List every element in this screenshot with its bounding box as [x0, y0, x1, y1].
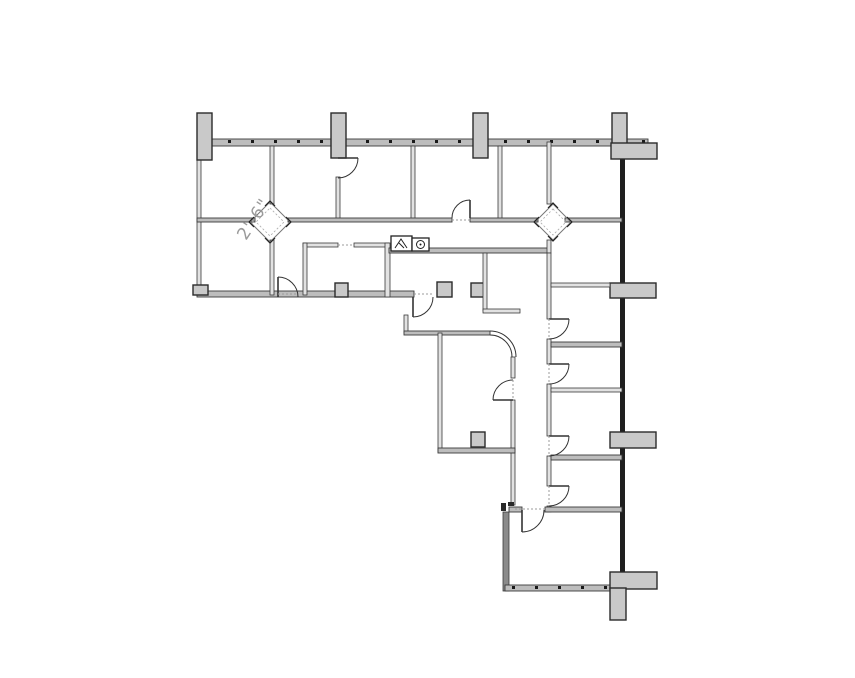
door-arc — [338, 158, 358, 178]
room-divider — [551, 388, 622, 392]
door-arc — [549, 436, 569, 456]
column-right-2 — [610, 432, 656, 448]
doors — [278, 158, 569, 532]
interior-walls-middle — [404, 315, 516, 505]
floor-plan-canvas: 2'-6" — [0, 0, 855, 678]
door-jamb-detail — [508, 502, 514, 506]
wall-segment — [411, 146, 415, 220]
column-top-1 — [197, 113, 212, 160]
wall-segment — [547, 240, 551, 253]
wall-segment — [336, 177, 340, 220]
room-west-wall — [438, 333, 442, 452]
wall-segment — [404, 331, 490, 335]
column-bottom-left-corner — [193, 285, 208, 295]
wall-segment — [303, 243, 338, 247]
door-arc — [549, 364, 569, 384]
wall-segment — [303, 243, 307, 295]
exterior-wall-bottom-room-left — [503, 512, 509, 591]
door-arc — [493, 380, 513, 400]
corridor-wall-segment — [565, 218, 622, 222]
column-top-right-horizontal — [611, 143, 657, 159]
door-arc — [549, 486, 569, 506]
door-arc — [549, 319, 569, 339]
wall-segment — [547, 253, 551, 319]
window-wall-top — [197, 139, 648, 146]
corridor-wall-segment — [470, 218, 538, 222]
wall-segment — [270, 240, 274, 295]
column-top-2 — [331, 113, 346, 158]
wall-segment — [547, 456, 551, 486]
hallway-west-wall — [511, 400, 515, 452]
counter-appliance-icon — [391, 236, 412, 251]
room-divider — [551, 342, 622, 347]
wall-segment — [547, 142, 551, 204]
door-jamb-detail — [501, 503, 506, 511]
columns — [193, 113, 657, 620]
bottom-room-north-wall — [545, 507, 622, 512]
wall-segment — [547, 339, 551, 364]
corridor-wall-segment — [288, 218, 452, 222]
column-bottom-right-horizontal — [610, 572, 657, 589]
sink-counter — [391, 236, 429, 251]
room-divider — [551, 455, 622, 460]
room-south-wall — [438, 448, 515, 453]
wall-segment — [498, 146, 502, 220]
column-interior-4 — [471, 432, 485, 447]
column-top-right-vertical — [612, 113, 627, 147]
column-interior-1 — [335, 283, 348, 297]
wall-segment — [354, 243, 389, 247]
column-bottom-right-vertical — [610, 588, 626, 620]
wall-segment — [547, 384, 551, 436]
door-arc — [413, 297, 433, 317]
sink-drain-dot — [420, 244, 422, 246]
wall-segment — [404, 315, 408, 333]
wall-segment — [270, 146, 274, 204]
room-divider — [551, 283, 610, 287]
alcove-wall — [483, 253, 487, 311]
alcove-wall — [483, 309, 520, 313]
door-arc — [522, 510, 544, 532]
column-interior-2 — [437, 282, 452, 297]
column-top-3 — [473, 113, 488, 158]
floor-plan-drawing: 2'-6" — [0, 0, 855, 678]
hallway-west-wall — [511, 452, 515, 505]
hallway-west-wall — [511, 357, 515, 378]
column-right-1 — [610, 283, 656, 298]
door-arc — [452, 200, 470, 218]
